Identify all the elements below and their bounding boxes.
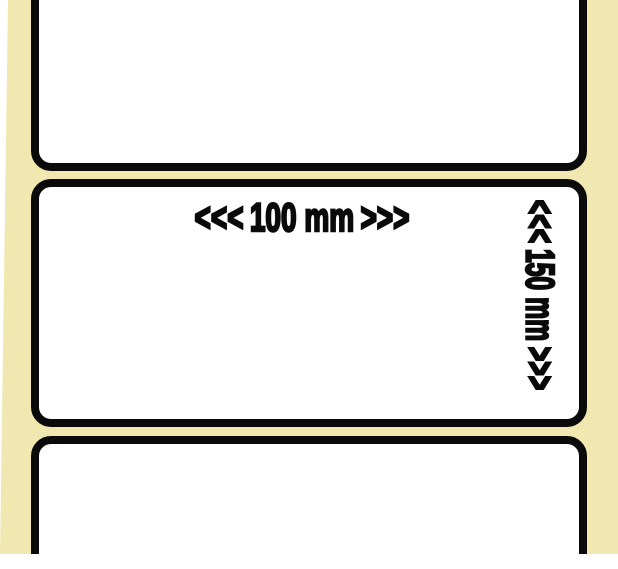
- label-roll-product-image: <<< 100 mm >>> <<< 150 mm >>>: [0, 0, 618, 569]
- label-roll: <<< 100 mm >>> <<< 150 mm >>>: [0, 0, 618, 554]
- label-middle: <<< 100 mm >>> <<< 150 mm >>>: [31, 179, 587, 427]
- label-bottom: [31, 436, 587, 554]
- up-arrows-icon: <<<: [518, 200, 562, 243]
- label-top: [31, 0, 587, 171]
- width-dimension: <<< 100 mm >>>: [113, 196, 491, 240]
- height-dimension-text: <<< 150 mm >>>: [518, 200, 562, 390]
- left-arrows-icon: <<<: [194, 196, 243, 240]
- width-value: 100 mm: [250, 196, 354, 240]
- height-value: 150 mm: [518, 249, 562, 341]
- down-arrows-icon: >>>: [518, 347, 562, 390]
- right-arrows-icon: >>>: [360, 196, 409, 240]
- height-dimension: <<< 150 mm >>>: [513, 187, 567, 403]
